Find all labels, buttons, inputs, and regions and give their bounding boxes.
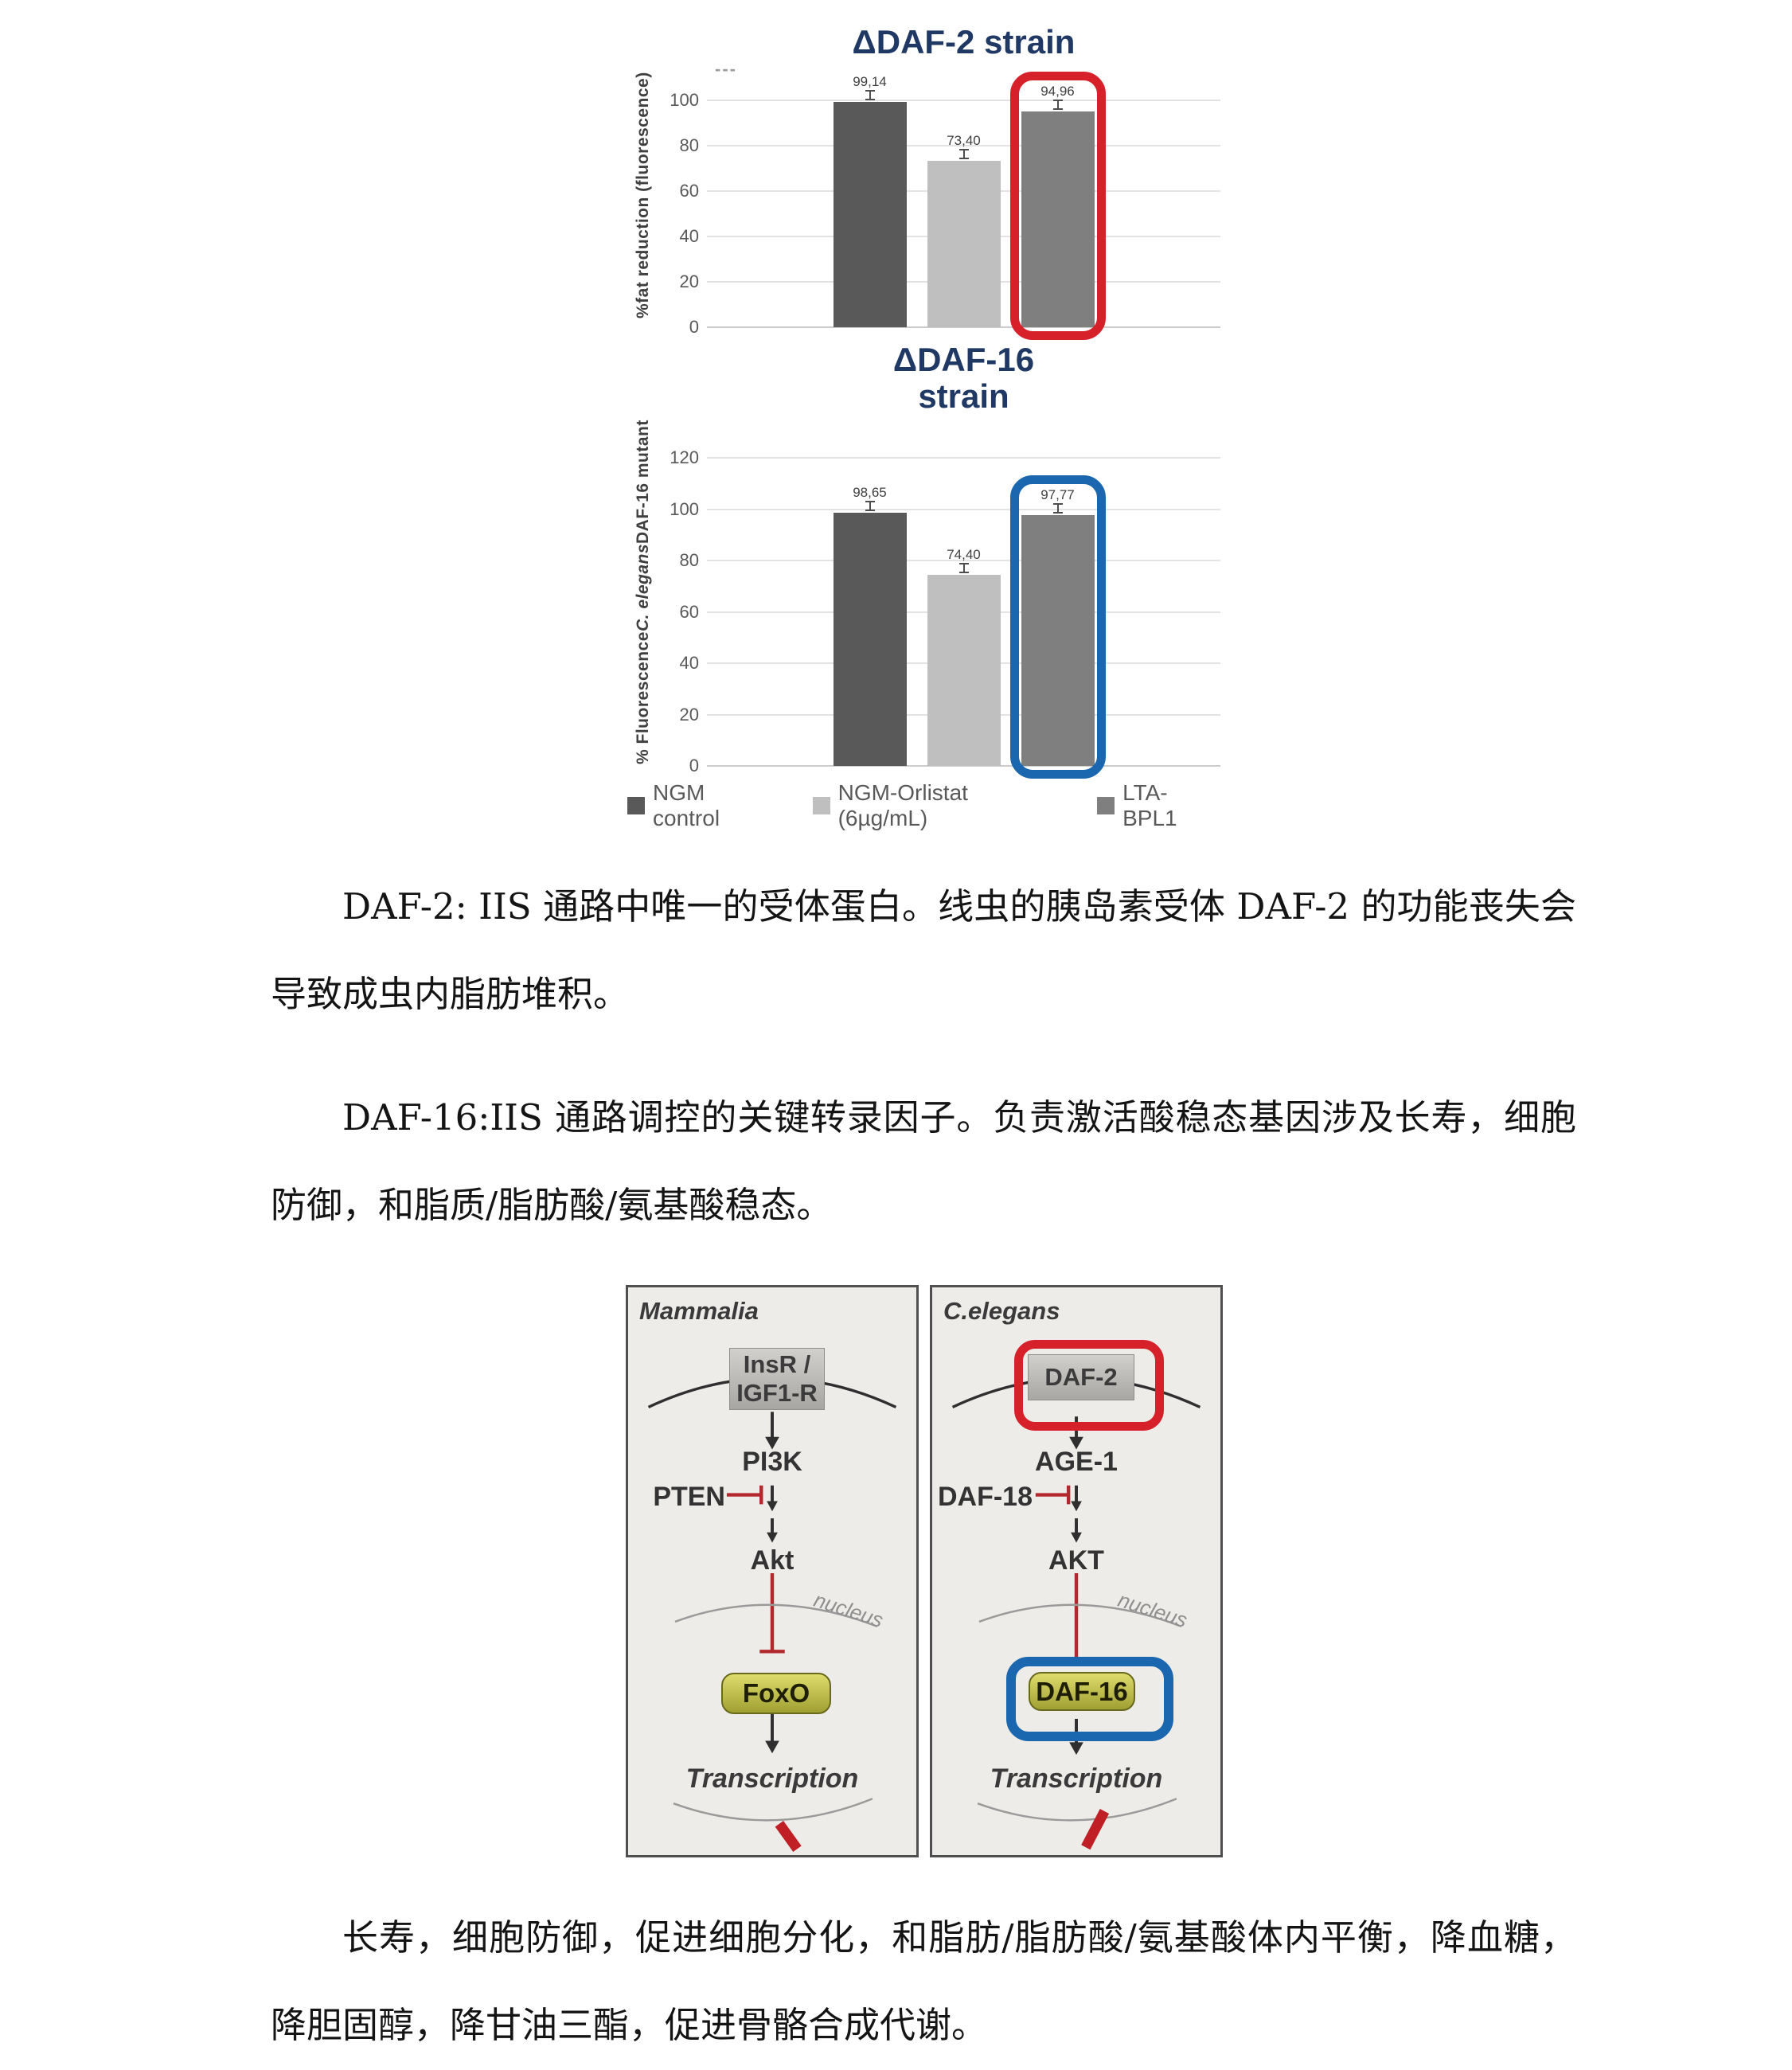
error-bar (865, 501, 876, 511)
legend-swatch-lta-bpl1 (1097, 797, 1115, 814)
paragraph-daf2: DAF-2: IIS 通路中唯一的受体蛋白。线虫的胰岛素受体 DAF-2 的功能… (271, 863, 1576, 1038)
chart-body: %fat reduction (fluorescence) --- 020406… (627, 61, 1220, 330)
chart-body: % Fluorescence C. elegans DAF-16 mutant … (627, 415, 1220, 769)
bar-ngm-orlistat-6-g-ml- (927, 575, 1001, 766)
y-tick-label: 60 (661, 602, 699, 623)
panel-title: Mammalia (639, 1297, 759, 1326)
kinase1-node: AGE-1 (932, 1447, 1220, 1478)
pathway-diagram: Mammalia InsR / IGF1-R PI3K PTEN Akt nuc… (626, 1285, 1792, 1857)
legend-item: LTA-BPL1 (1097, 780, 1220, 831)
chart-legend: NGM control NGM-Orlistat (6µg/mL) LTA-BP… (627, 780, 1220, 831)
highlight-outline (1010, 72, 1106, 340)
inhibitor-node: DAF-18 (932, 1482, 1033, 1513)
bar-value-label: 99,14 (834, 74, 907, 90)
panel-mammalia: Mammalia InsR / IGF1-R PI3K PTEN Akt nuc… (626, 1285, 919, 1857)
inhibitor-node: PTEN (628, 1482, 725, 1513)
y-tick-label: 120 (661, 447, 699, 468)
output-arrow (779, 1824, 798, 1849)
chart-daf2-strain: ΔDAF-2 strain %fat reduction (fluorescen… (627, 24, 1220, 330)
receptor-node: InsR / IGF1-R (729, 1348, 825, 1410)
transcription-label: Transcription (628, 1763, 916, 1795)
y-tick-label: 20 (661, 271, 699, 292)
tf-node: DAF-16 (1029, 1672, 1135, 1711)
chart-title: ΔDAF-2 strain (707, 24, 1220, 61)
kinase2-node: AKT (932, 1545, 1220, 1576)
chart-title-line: strain (918, 377, 1009, 415)
stray-dashes: --- (715, 59, 737, 80)
y-axis-label-italic: C. elegans (634, 544, 653, 631)
y-tick-label: 100 (661, 499, 699, 520)
kinase2-node: Akt (628, 1545, 916, 1576)
error-bar (958, 563, 970, 573)
y-tick-label: 100 (661, 90, 699, 111)
receptor-label: IGF1-R (730, 1379, 824, 1408)
receptor-label: InsR / (730, 1350, 824, 1379)
receptor-node: DAF-2 (1028, 1354, 1134, 1400)
bar-slot: 98,65 (834, 458, 907, 766)
panel-title: C.elegans (943, 1297, 1060, 1326)
legend-item: NGM-Orlistat (6µg/mL) (813, 780, 1060, 831)
legend-swatch-ngm-orlistat (813, 797, 830, 814)
error-bar-cap (959, 158, 969, 159)
arrowhead (1071, 1533, 1082, 1543)
bars-layer: 98,6574,4097,77 (707, 458, 1220, 766)
arrowhead (767, 1533, 778, 1543)
error-bar-cap (865, 501, 875, 502)
error-bar (865, 90, 876, 100)
bar-ngm-orlistat-6-g-ml- (927, 161, 1001, 327)
tf-node: FoxO (721, 1673, 831, 1714)
legend-label: NGM-Orlistat (6µg/mL) (838, 780, 1060, 831)
document-page: ΔDAF-2 strain %fat reduction (fluorescen… (0, 0, 1792, 2070)
bar-value-label: 98,65 (834, 485, 907, 501)
y-tick-label: 20 (661, 705, 699, 725)
y-axis-label-text: % Fluorescence (634, 631, 653, 764)
bar-value-label: 74,40 (927, 547, 1001, 563)
legend-label: LTA-BPL1 (1122, 780, 1220, 831)
bars-layer: 99,1473,4094,96 (707, 100, 1220, 327)
legend-label: NGM control (653, 780, 776, 831)
bar-slot: 74,40 (927, 458, 1001, 766)
error-bar-cap (959, 572, 969, 573)
bar-ngm-control (834, 513, 907, 766)
bar-value-label: 73,40 (927, 133, 1001, 149)
y-axis-label: % Fluorescence C. elegans DAF-16 mutant (627, 415, 659, 769)
y-axis-label-text: %fat reduction (fluorescence) (634, 72, 653, 319)
kinase1-node: PI3K (628, 1447, 916, 1478)
transcription-label: Transcription (932, 1763, 1220, 1795)
y-tick-label: 0 (661, 317, 699, 338)
bar-ngm-control (834, 102, 907, 327)
plot-area: 020406080100120 98,6574,4097,77 (707, 415, 1220, 769)
legend-swatch-ngm-control (627, 797, 645, 814)
y-tick-label: 80 (661, 550, 699, 571)
bar-chart-figure: ΔDAF-2 strain %fat reduction (fluorescen… (627, 24, 1220, 831)
y-tick-label: 40 (661, 226, 699, 247)
chart-title-line: ΔDAF-16 (893, 341, 1034, 378)
receptor-label: DAF-2 (1029, 1363, 1134, 1392)
y-tick-label: 80 (661, 135, 699, 156)
y-axis-label: %fat reduction (fluorescence) (627, 61, 659, 330)
plot-area: --- 020406080100 99,1473,4094,96 (707, 61, 1220, 330)
bottom-curve (978, 1799, 1177, 1820)
legend-item: NGM control (627, 780, 776, 831)
highlight-outline (1010, 475, 1106, 779)
arrowhead (1071, 1501, 1082, 1511)
arrowhead (1069, 1742, 1083, 1755)
bar-value-group: 98,65 (834, 485, 907, 511)
y-tick-label: 60 (661, 181, 699, 201)
bar-value-group: 99,14 (834, 74, 907, 100)
bar-value-group: 74,40 (927, 547, 1001, 573)
bar-slot: 97,77 (1021, 458, 1095, 766)
error-bar-cap (865, 510, 875, 511)
paragraph-functions: 长寿，细胞防御，促进细胞分化，和脂肪/脂肪酸/氨基酸体内平衡，降血糖，降胆固醇，… (271, 1894, 1576, 2069)
bottom-curve (673, 1799, 873, 1820)
arrowhead (765, 1740, 779, 1753)
bar-slot: 99,14 (834, 100, 907, 327)
error-bar-cap (959, 149, 969, 150)
chart-title: ΔDAF-16strain (707, 342, 1220, 415)
bar-slot: 94,96 (1021, 100, 1095, 327)
error-bar (958, 149, 970, 159)
arrowhead (767, 1501, 778, 1511)
error-bar-cap (959, 563, 969, 564)
y-axis-label-text: DAF-16 mutant (634, 420, 653, 544)
paragraph-daf16: DAF-16:IIS 通路调控的关键转录因子。负责激活酸稳态基因涉及长寿，细胞防… (271, 1074, 1576, 1249)
y-tick-label: 0 (661, 756, 699, 776)
error-bar-cap (865, 90, 875, 92)
output-arrow (1086, 1811, 1105, 1847)
y-tick-label: 40 (661, 653, 699, 674)
chart-title-line: ΔDAF-2 strain (853, 23, 1076, 61)
bar-value-group: 73,40 (927, 133, 1001, 159)
bar-slot: 73,40 (927, 100, 1001, 327)
panel-celegans: C.elegans DAF-2 AGE-1 DAF-18 AKT nucleus… (930, 1285, 1223, 1857)
error-bar-cap (865, 99, 875, 100)
chart-daf16-strain: ΔDAF-16strain % Fluorescence C. elegans … (627, 342, 1220, 769)
